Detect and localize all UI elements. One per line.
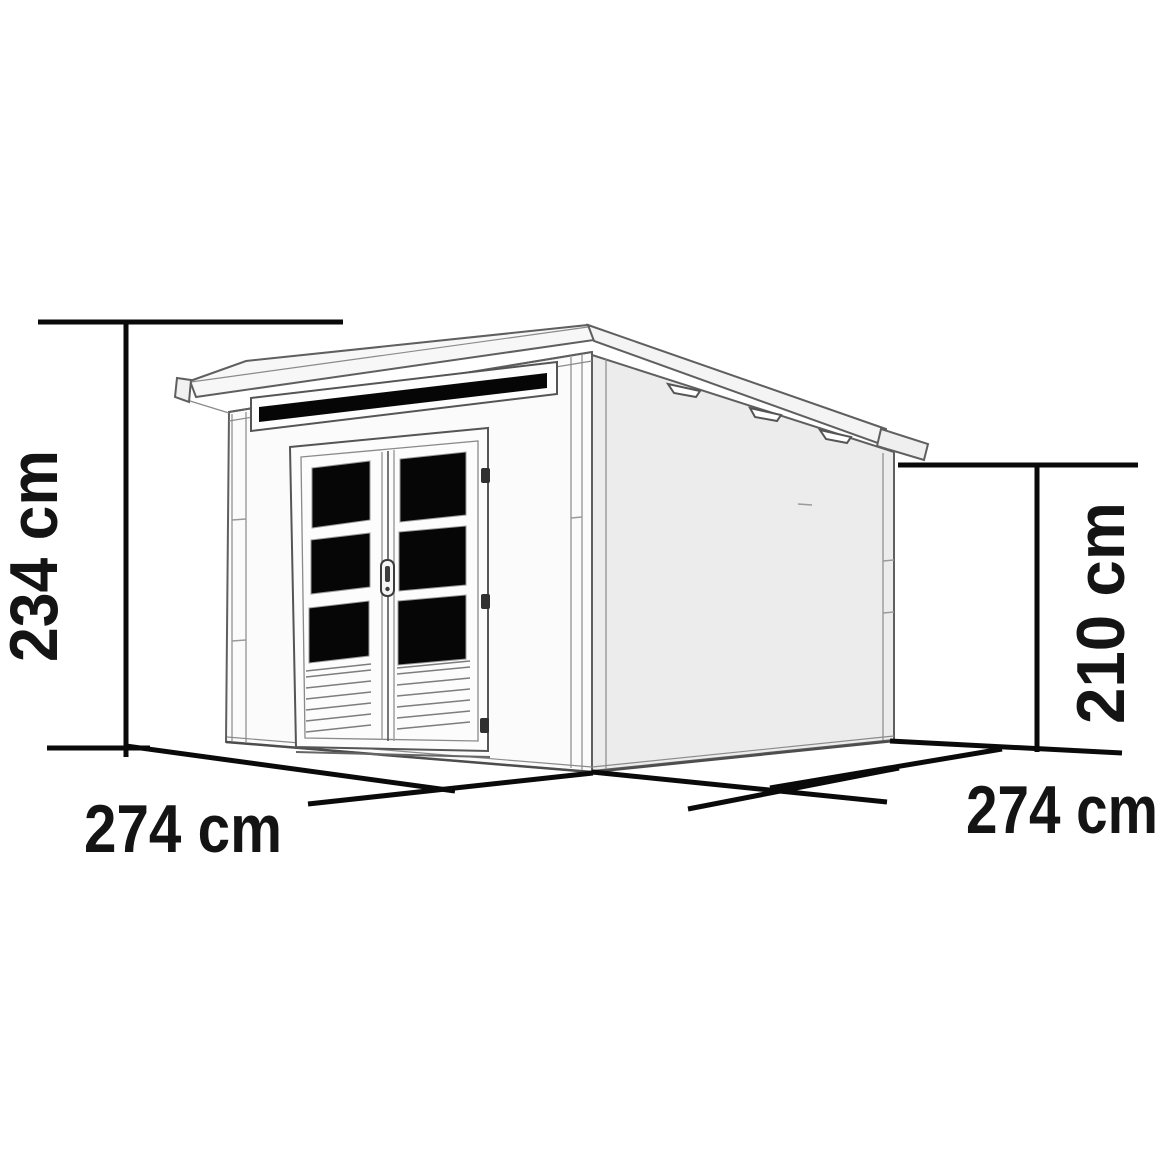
door-hinge — [481, 468, 490, 483]
double-door — [290, 428, 490, 757]
dimension-label-wall-height: 210 cm — [1063, 502, 1139, 724]
trim-seam — [883, 612, 894, 613]
door-glass-pane — [312, 461, 370, 528]
trim-seam — [571, 517, 582, 518]
door-glass-pane — [400, 452, 466, 522]
dim-tick-bottom-right — [890, 741, 1122, 753]
shed-dimension-diagram: 234 cm 210 cm 274 cm 274 cm — [0, 0, 1160, 1160]
door-glass-pane — [398, 595, 466, 665]
door-hinge — [480, 718, 489, 733]
shed-illustration — [175, 325, 928, 772]
trim-seam — [232, 640, 246, 641]
trim-seam — [883, 560, 894, 561]
dimension-label-overall-height: 234 cm — [0, 450, 72, 662]
door-glass-pane — [309, 601, 369, 663]
door-glass-pane — [399, 526, 466, 591]
dimension-label-front-width: 274 cm — [84, 791, 282, 867]
roof-left-end-cap — [175, 378, 191, 402]
dimension-label-side-depth: 274 cm — [966, 772, 1158, 848]
door-hinge — [481, 594, 490, 609]
side-wall-seam — [798, 504, 812, 505]
door-handle — [381, 560, 394, 596]
door-glass-pane — [311, 533, 370, 594]
trim-seam — [232, 519, 246, 520]
diagram-canvas: 234 cm 210 cm 274 cm 274 cm — [0, 0, 1160, 1160]
